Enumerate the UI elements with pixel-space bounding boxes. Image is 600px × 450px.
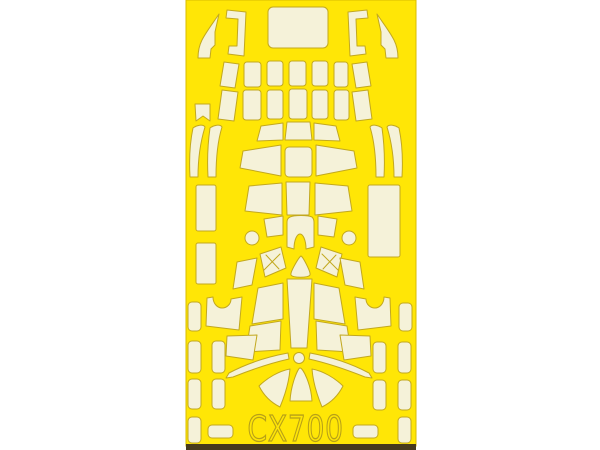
product-code-label: CX700 <box>247 408 343 450</box>
mask-piece <box>352 90 372 121</box>
mask-piece <box>226 335 257 360</box>
mask-piece <box>318 216 337 237</box>
mask-piece <box>373 380 386 410</box>
mask-piece <box>188 341 201 373</box>
mask-piece <box>289 61 306 86</box>
mask-piece <box>208 425 233 438</box>
mask-piece <box>352 62 371 88</box>
mask-dot <box>342 231 356 245</box>
mask-piece <box>188 417 201 443</box>
mask-piece <box>286 182 310 215</box>
mask-piece <box>334 90 349 120</box>
mask-dot <box>245 231 259 245</box>
mask-piece <box>398 342 411 373</box>
mask-piece <box>212 379 225 409</box>
mask-piece <box>353 425 378 438</box>
mask-piece <box>188 379 201 409</box>
mask-fan-center <box>287 279 312 348</box>
mask-hub-dot <box>294 353 305 364</box>
mask-piece <box>196 185 216 231</box>
product-image: CX700 <box>0 0 600 450</box>
mask-piece <box>334 62 348 87</box>
mask-sheet-svg: CX700 <box>0 0 600 450</box>
mask-piece <box>314 123 340 141</box>
mask-piece <box>188 302 201 331</box>
mask-piece <box>196 243 216 284</box>
mask-piece <box>267 61 283 86</box>
mask-piece <box>212 341 225 373</box>
mask-piece <box>220 62 239 88</box>
mask-piece <box>398 380 411 410</box>
sheet-bottom-edge <box>186 444 416 450</box>
mask-piece <box>243 90 261 120</box>
mask-piece <box>340 335 371 360</box>
mask-piece <box>312 90 328 119</box>
mask-piece <box>315 183 352 215</box>
mask-piece <box>285 122 312 140</box>
mask-piece <box>373 342 386 373</box>
mask-piece <box>267 90 283 119</box>
mask-canopy-main <box>268 7 328 48</box>
mask-piece <box>312 61 328 86</box>
mask-piece <box>245 183 282 215</box>
mask-piece <box>398 417 411 443</box>
mask-piece <box>218 90 238 121</box>
mask-piece <box>285 147 312 177</box>
mask-piece <box>368 185 400 257</box>
mask-piece <box>257 123 283 141</box>
mask-piece <box>399 303 412 331</box>
mask-piece <box>289 89 307 119</box>
mask-piece <box>264 216 283 237</box>
mask-piece <box>244 62 261 87</box>
